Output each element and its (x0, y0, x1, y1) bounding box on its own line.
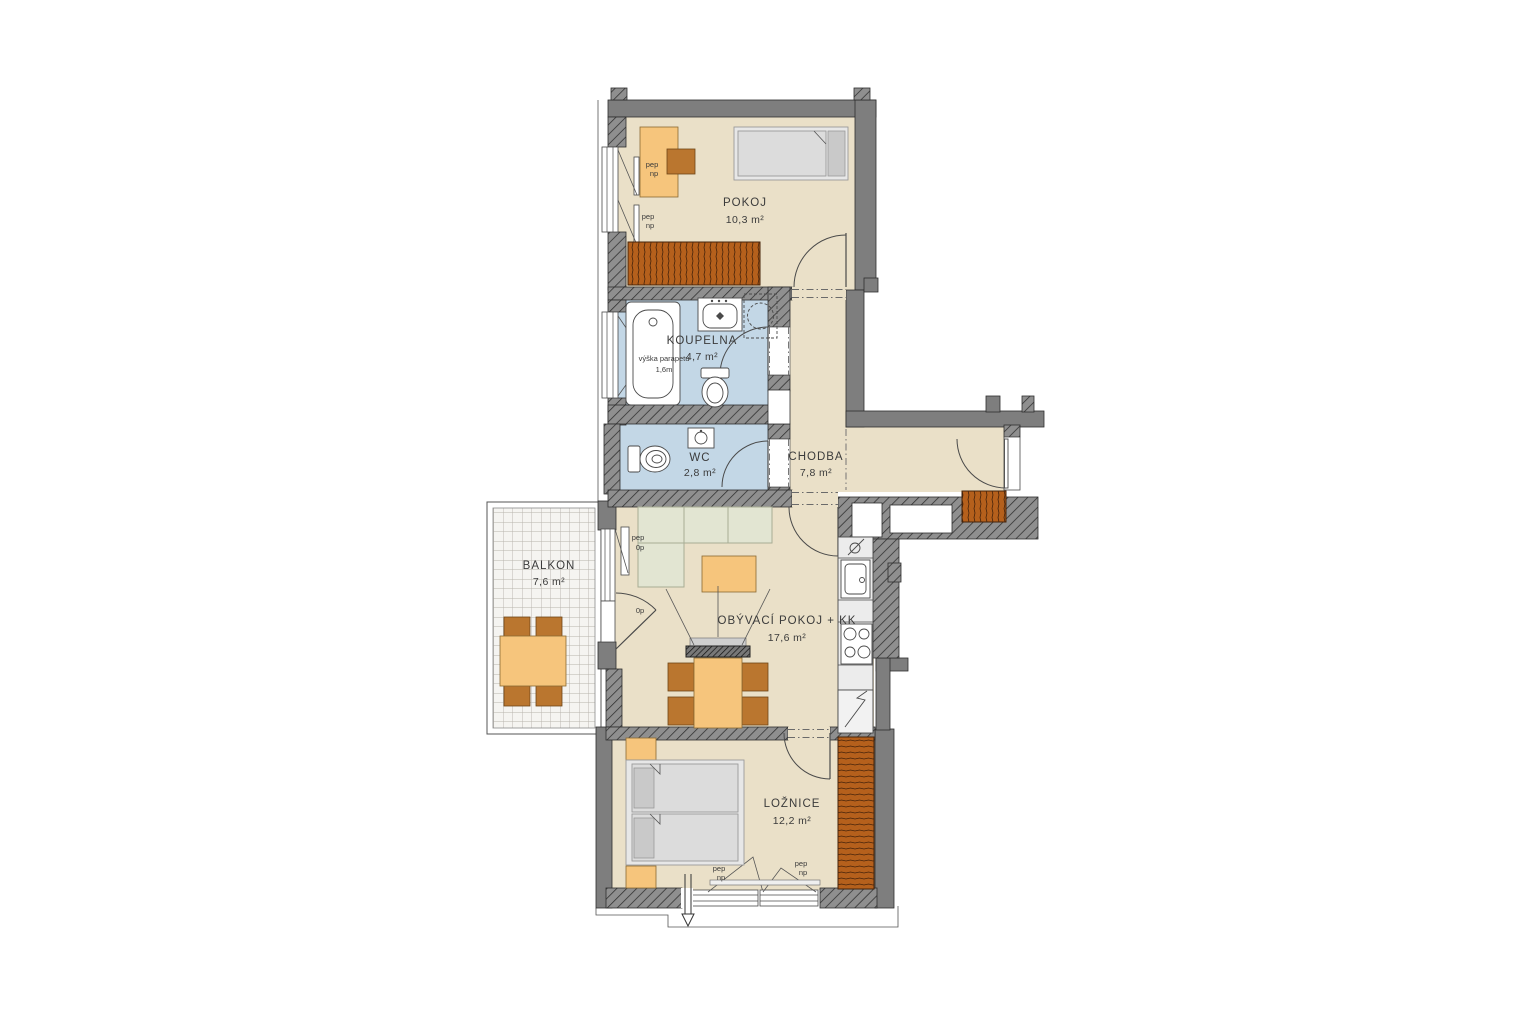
room-area-wc: 2,8 m² (684, 467, 716, 479)
toilet-koupelna (701, 368, 729, 407)
desk-chair (667, 149, 695, 174)
balcony-table (500, 636, 566, 686)
room-label-obyvaci: OBÝVACÍ POKOJ + KK (718, 614, 857, 627)
room-area-balkon: 7,6 m² (533, 576, 565, 588)
double-bed (626, 760, 744, 865)
room-area-koupelna: 4,7 m² (686, 351, 718, 363)
room-label-pokoj: POKOJ (723, 197, 767, 209)
hall-cabinet (962, 491, 1006, 522)
room-label-balkon: BALKON (523, 560, 576, 572)
room-area-obyvaci: 17,6 m² (768, 632, 806, 644)
svg-text:0p: 0p (636, 606, 644, 615)
svg-text:np: np (717, 873, 725, 882)
room-area-chodba: 7,8 m² (800, 467, 832, 479)
room-label-wc: WC (689, 452, 710, 464)
wardrobe-pokoj (628, 242, 760, 285)
single-bed (734, 127, 848, 180)
room-label-loznice: LOŽNICE (764, 797, 821, 810)
stove (841, 624, 872, 664)
nightstand-top (626, 738, 656, 760)
nightstand-bottom (626, 866, 656, 888)
furniture-chodba (962, 491, 1006, 522)
room-label-chodba: CHODBA (788, 451, 843, 463)
balcony (487, 502, 601, 734)
wc-sink (688, 428, 714, 448)
bathroom-sink (698, 298, 742, 331)
svg-text:pep: pep (642, 212, 655, 221)
coffee-table (702, 556, 756, 592)
svg-text:pep: pep (646, 160, 659, 169)
svg-text:np: np (650, 169, 658, 178)
floor-plan-page: POKOJ 10,3 m² KOUPELNA 4,7 m² WC 2,8 m² … (0, 0, 1536, 1024)
room-area-loznice: 12,2 m² (773, 815, 811, 827)
kitchen (838, 537, 873, 733)
svg-text:pep: pep (632, 533, 645, 542)
toilet-wc (628, 446, 670, 472)
kitchen-sink (841, 560, 870, 598)
wardrobe-loznice (838, 737, 874, 889)
room-label-koupelna: KOUPELNA (667, 335, 738, 347)
svg-text:0p: 0p (636, 543, 644, 552)
sill-height-annotation-line2: 1,6m (656, 365, 673, 374)
floor-plan: POKOJ 10,3 m² KOUPELNA 4,7 m² WC 2,8 m² … (0, 0, 1536, 1024)
svg-text:pep: pep (713, 864, 726, 873)
window-annotation-obyvaci-door: 0p (636, 606, 644, 615)
fridge (838, 690, 873, 733)
sill-height-annotation-line1: výška parapetu (639, 354, 690, 363)
svg-text:np: np (799, 868, 807, 877)
svg-text:pep: pep (795, 859, 808, 868)
room-area-pokoj: 10,3 m² (726, 214, 764, 226)
svg-text:np: np (646, 221, 654, 230)
window-sill-line (710, 880, 820, 885)
